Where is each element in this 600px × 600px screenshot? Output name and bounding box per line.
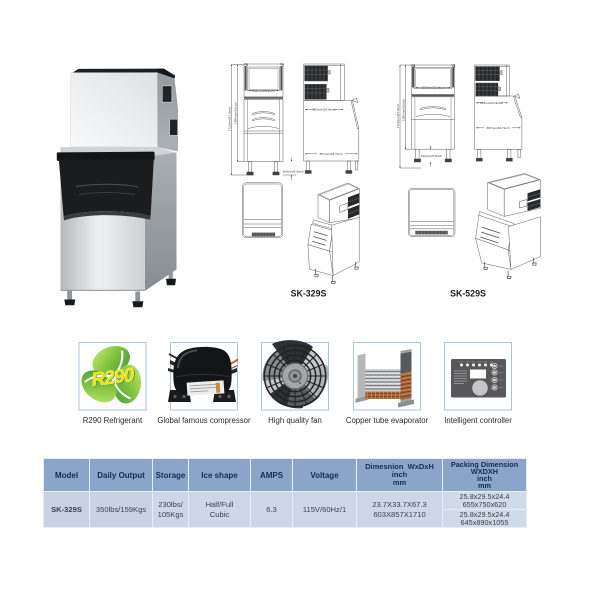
svg-text:1550mm/61inch: 1550mm/61inch (402, 99, 406, 121)
svg-text:633mm/24.9inch: 633mm/24.9inch (480, 101, 503, 105)
svg-text:High quality fan: High quality fan (268, 416, 322, 425)
svg-text:SK-529S: SK-529S (450, 289, 486, 299)
svg-text:1710mm/67.3inch: 1710mm/67.3inch (396, 103, 400, 128)
svg-text:160mm/6.3inch: 160mm/6.3inch (282, 169, 303, 173)
svg-text:Intelligent controller: Intelligent controller (444, 416, 512, 425)
svg-text:857mm/33.7inch: 857mm/33.7inch (487, 126, 510, 130)
svg-text:Global famous compressor: Global famous compressor (157, 416, 251, 425)
svg-text:152mm/5.3inch: 152mm/5.3inch (421, 154, 442, 158)
svg-text:803mm/31.6inch: 803mm/31.6inch (422, 86, 445, 90)
svg-text:1710mm/67.3inch: 1710mm/67.3inch (228, 106, 232, 131)
svg-text:R290 Refrigerant: R290 Refrigerant (83, 416, 143, 425)
svg-text:SK-329S: SK-329S (291, 289, 327, 299)
svg-text:633mm/24.9inch: 633mm/24.9inch (313, 108, 336, 112)
svg-text:633mm/25.9inch: 633mm/25.9inch (252, 89, 275, 93)
svg-text:1550mm/61inch: 1550mm/61inch (234, 102, 238, 124)
svg-text:857mm/33.7inch: 857mm/33.7inch (320, 152, 343, 156)
svg-text:Copper tube evaporator: Copper tube evaporator (346, 416, 429, 425)
